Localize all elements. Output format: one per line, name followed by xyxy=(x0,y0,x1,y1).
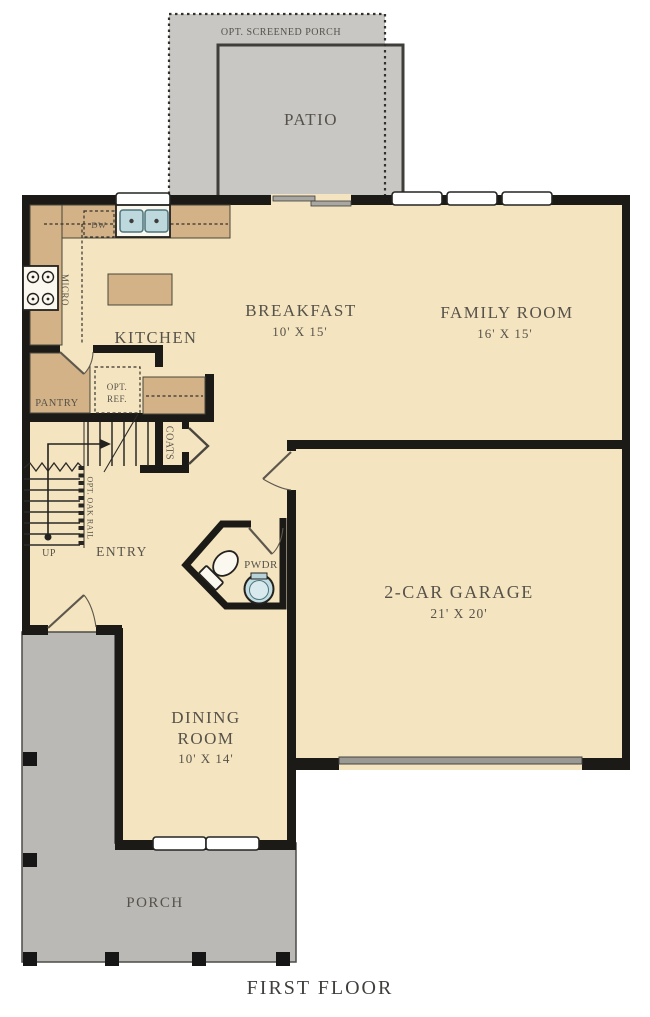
family-window-3 xyxy=(502,192,552,205)
entry-label: ENTRY xyxy=(96,544,148,559)
screened-porch-label: OPT. SCREENED PORCH xyxy=(221,27,341,38)
coats-label: COATS xyxy=(164,426,175,460)
microwave-label: MICRO xyxy=(60,274,70,306)
sliding-door-panel-inner xyxy=(311,201,351,206)
opt-ref-label-1: OPT. xyxy=(107,382,128,392)
garage-door xyxy=(339,757,582,764)
oak-rail-label: OPT. OAK RAIL xyxy=(86,476,95,539)
family-room-dims: 16' X 15' xyxy=(477,326,533,341)
pantry-label: PANTRY xyxy=(35,398,78,409)
dining-label-1: DINING xyxy=(171,708,240,727)
dishwasher-label: DW xyxy=(91,220,106,230)
family-window-2 xyxy=(447,192,497,205)
dining-window-1 xyxy=(153,837,206,850)
dining-window-2 xyxy=(206,837,259,850)
powder-label: PWDR xyxy=(244,559,278,571)
basin-icon xyxy=(245,573,274,604)
floor-plan-drawing: OPT. SCREENED PORCH PATIO KITCHEN BREAKF… xyxy=(0,0,650,1017)
sliding-door-panel-outer xyxy=(273,196,315,201)
screened-porch-area xyxy=(169,14,403,197)
breakfast-dims: 10' X 15' xyxy=(272,324,328,339)
garage-label: 2-CAR GARAGE xyxy=(384,582,534,602)
patio-label: PATIO xyxy=(284,110,338,129)
family-room-label: FAMILY ROOM xyxy=(440,303,573,322)
breakfast-label: BREAKFAST xyxy=(245,301,356,320)
sink-icon xyxy=(116,205,170,237)
family-window-1 xyxy=(392,192,442,205)
stove-icon xyxy=(23,266,58,310)
dining-dims: 10' X 14' xyxy=(178,751,234,766)
up-label: UP xyxy=(42,548,56,559)
plan-caption: FIRST FLOOR xyxy=(247,977,394,999)
kitchen-label: KITCHEN xyxy=(115,328,198,347)
kitchen-window xyxy=(116,193,170,206)
garage-dims: 21' X 20' xyxy=(430,606,487,621)
porch-label: PORCH xyxy=(126,895,184,911)
floor-plan: OPT. SCREENED PORCH PATIO KITCHEN BREAKF… xyxy=(0,0,650,1017)
dining-label-2: ROOM xyxy=(177,729,234,748)
opt-ref-label-2: REF. xyxy=(107,394,127,404)
kitchen-island xyxy=(108,274,172,305)
